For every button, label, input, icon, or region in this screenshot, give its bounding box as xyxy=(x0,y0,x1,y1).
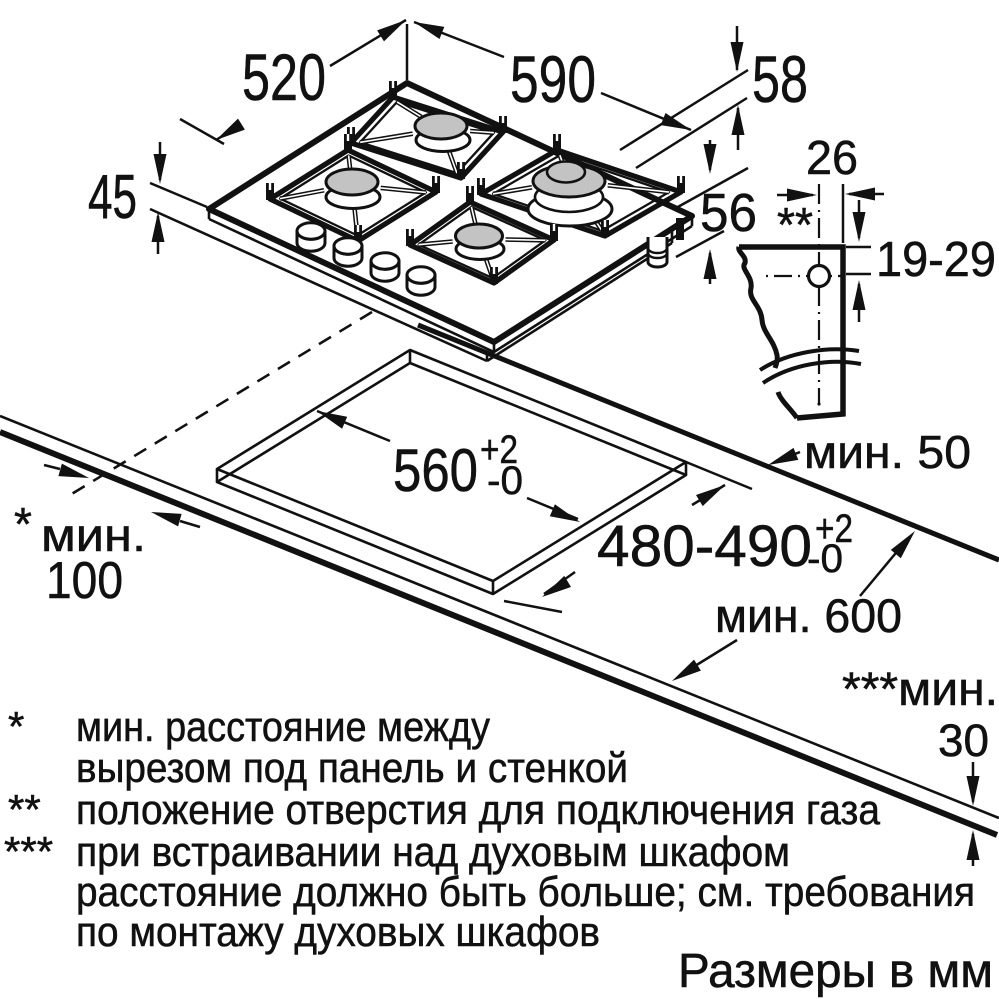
svg-text:520: 520 xyxy=(242,40,326,114)
svg-text:19-29: 19-29 xyxy=(876,233,996,287)
svg-text:положение отверстия для подклю: положение отверстия для подключения газа xyxy=(76,786,881,833)
svg-text:***: *** xyxy=(4,828,53,875)
svg-text:мин. расстояние между: мин. расстояние между xyxy=(76,703,490,750)
svg-text:*: * xyxy=(8,703,24,750)
svg-text:30: 30 xyxy=(938,715,989,766)
svg-text:100: 100 xyxy=(46,552,123,610)
svg-text:**: ** xyxy=(777,199,813,252)
svg-text:480-490: 480-490 xyxy=(597,514,812,579)
svg-text:мин. 50: мин. 50 xyxy=(804,426,971,478)
svg-text:Размеры в мм: Размеры в мм xyxy=(678,945,993,998)
svg-text:45: 45 xyxy=(88,163,137,232)
svg-text:вырезом под панель и стенкой: вырезом под панель и стенкой xyxy=(76,744,628,791)
svg-text:мин. 600: мин. 600 xyxy=(715,589,902,642)
svg-text:26: 26 xyxy=(806,132,858,185)
svg-text:по монтажу духовых шкафов: по монтажу духовых шкафов xyxy=(76,908,600,955)
svg-text:590: 590 xyxy=(510,42,596,116)
svg-text:56: 56 xyxy=(700,183,757,243)
svg-text:*: * xyxy=(14,498,32,550)
svg-text:58: 58 xyxy=(752,42,808,116)
svg-text:560: 560 xyxy=(393,437,478,504)
svg-text:**: ** xyxy=(8,786,41,833)
svg-text:***мин.: ***мин. xyxy=(842,662,998,715)
svg-text:-0: -0 xyxy=(807,537,843,581)
svg-text:-0: -0 xyxy=(487,459,523,503)
